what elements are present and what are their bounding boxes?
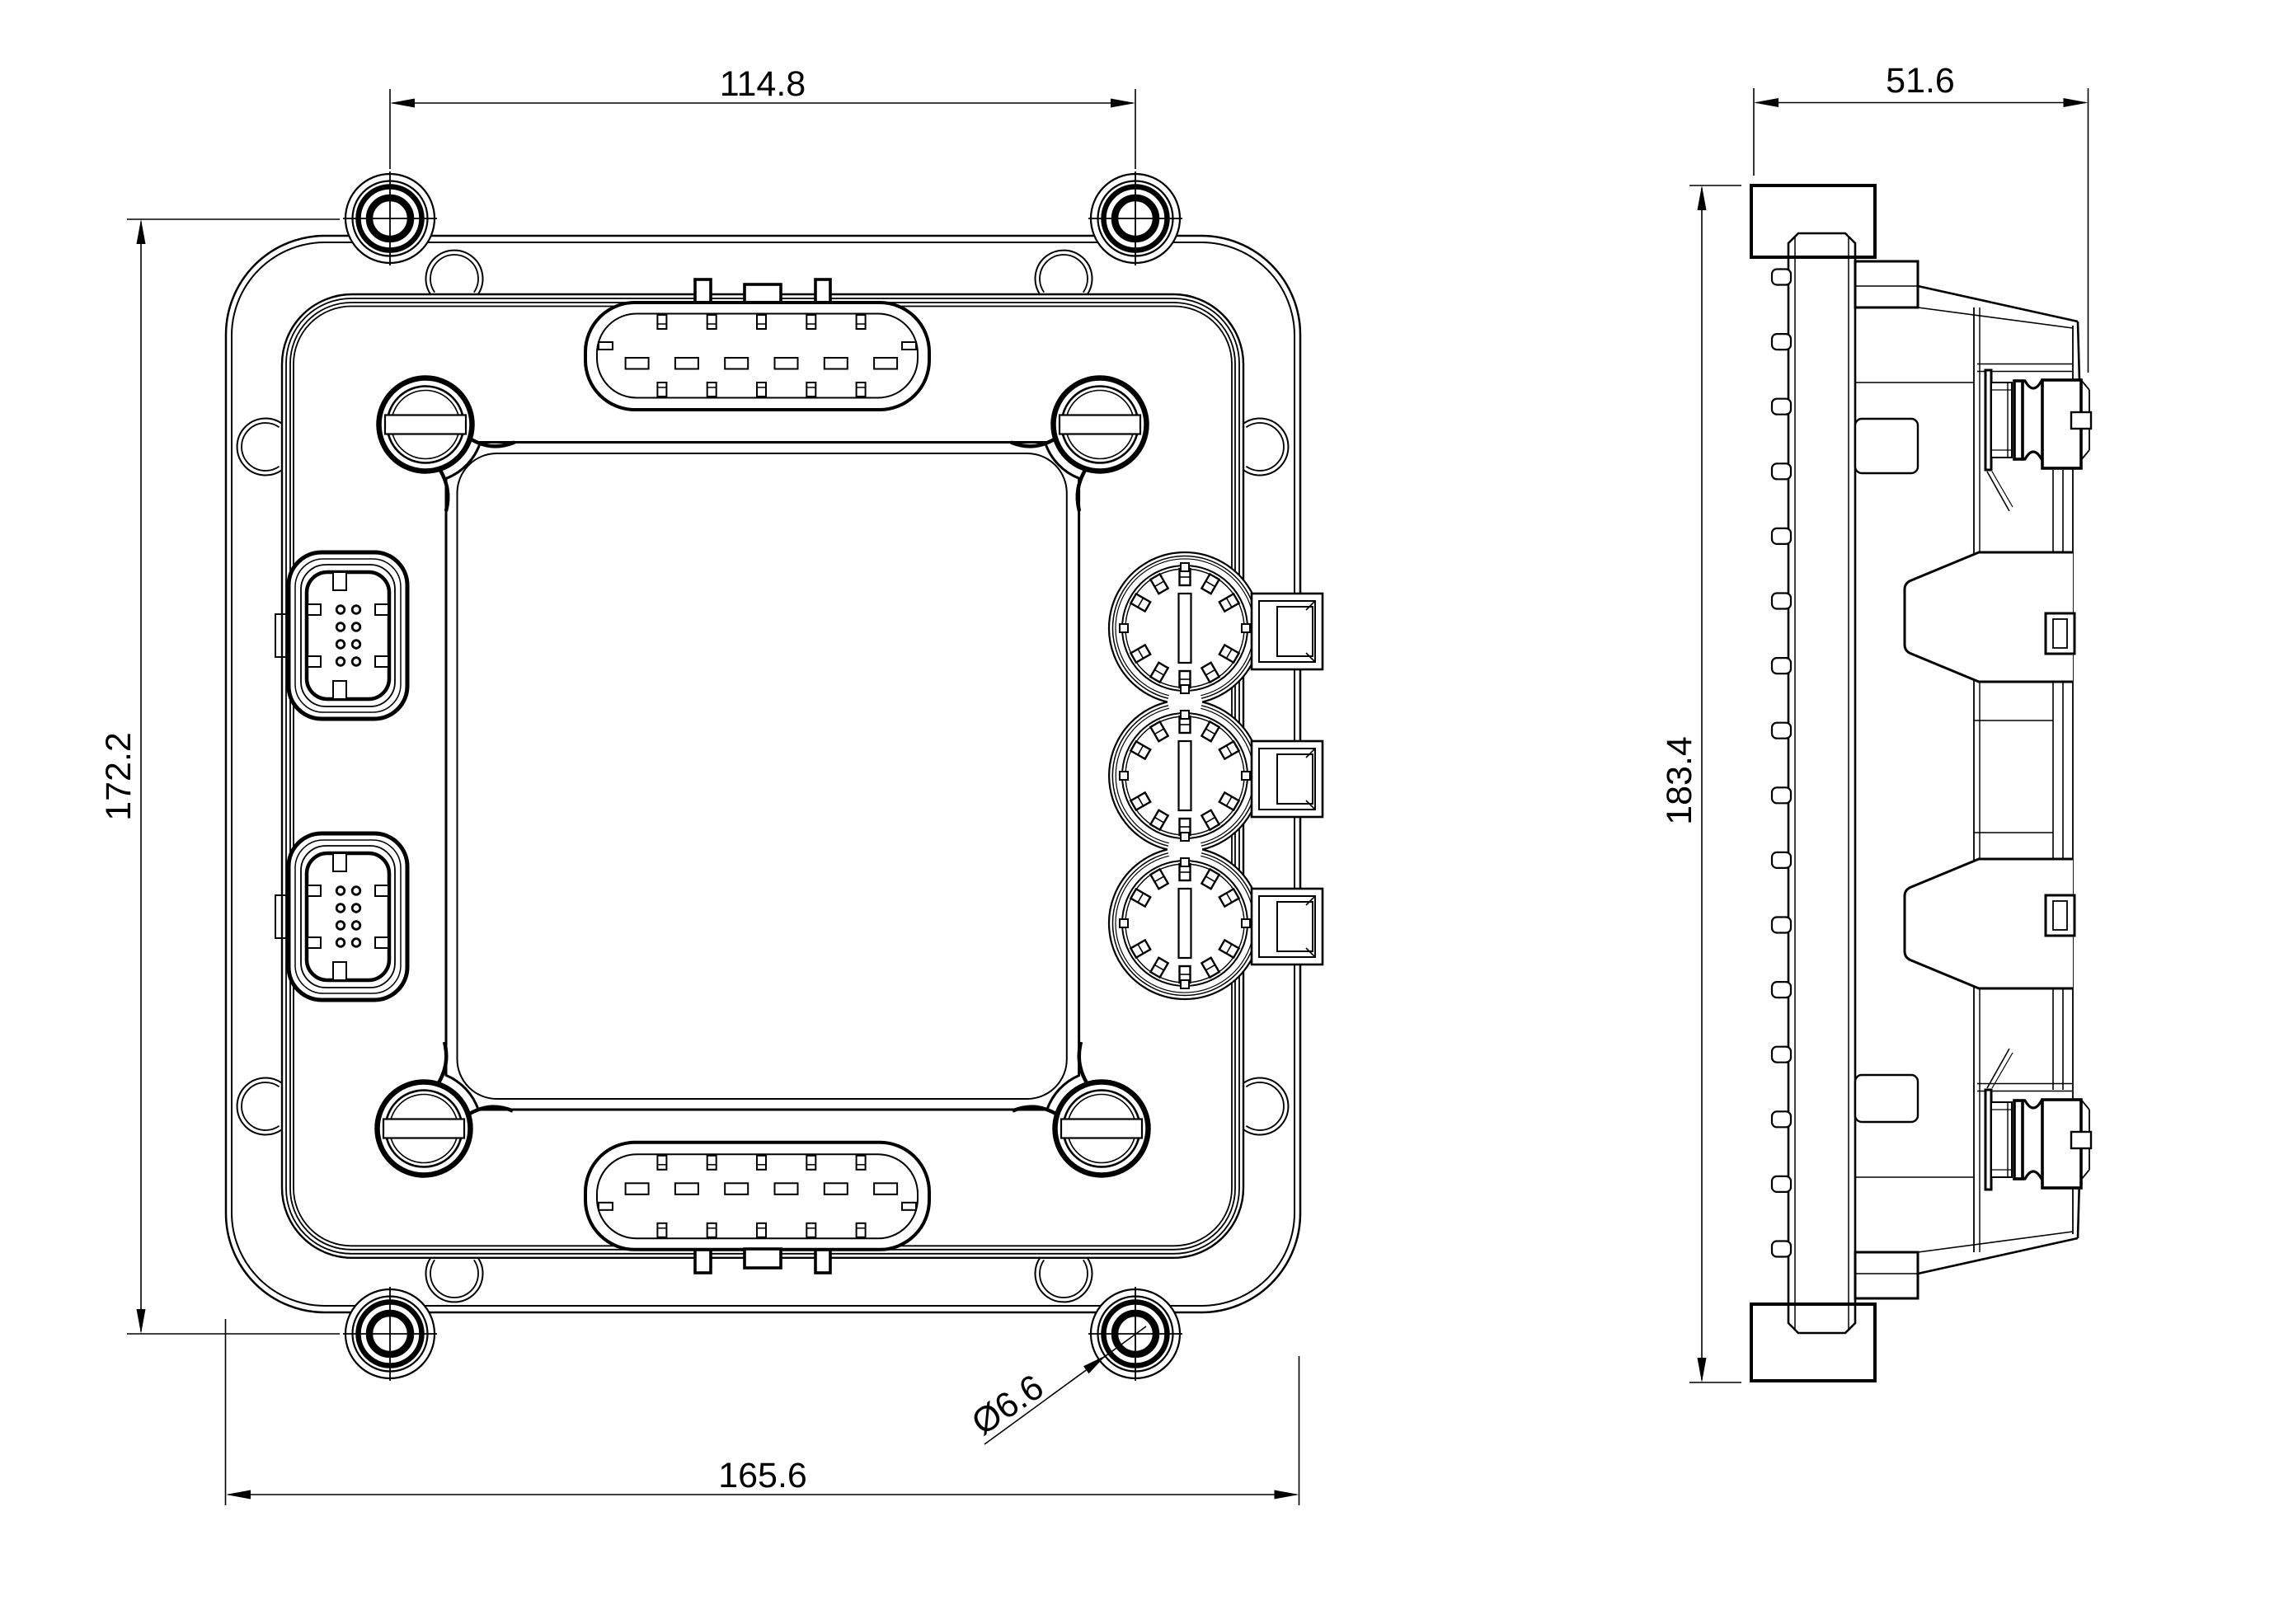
svg-text:165.6: 165.6 xyxy=(718,1456,807,1495)
svg-text:183.4: 183.4 xyxy=(1660,736,1699,825)
svg-text:114.8: 114.8 xyxy=(720,64,806,104)
svg-text:172.2: 172.2 xyxy=(99,732,139,821)
svg-text:51.6: 51.6 xyxy=(1886,61,1955,101)
